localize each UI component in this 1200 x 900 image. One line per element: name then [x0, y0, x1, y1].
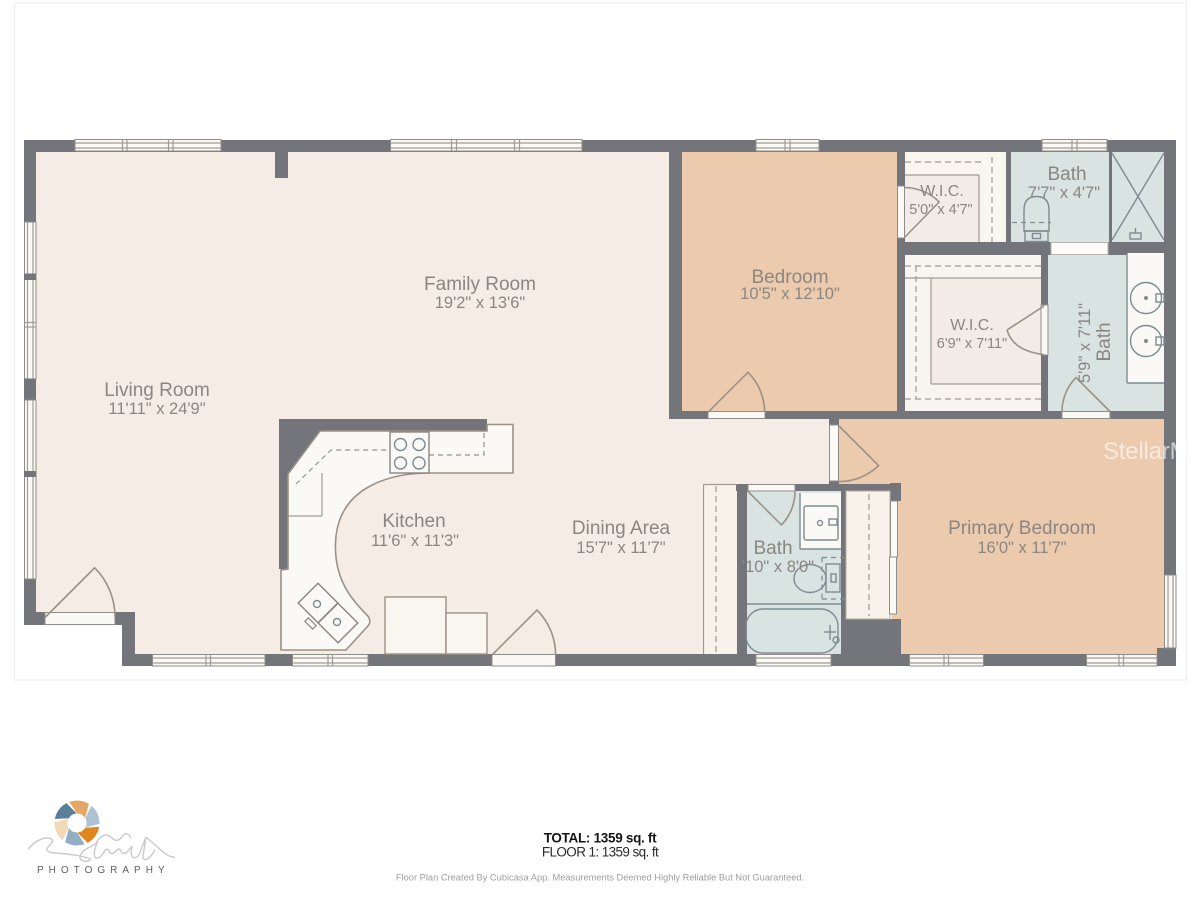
svg-text:Primary Bedroom: Primary Bedroom: [948, 518, 1096, 539]
svg-text:19'2" x 13'6": 19'2" x 13'6": [435, 294, 526, 312]
svg-text:5'9" x 7'11": 5'9" x 7'11": [1076, 303, 1094, 383]
svg-text:6'9" x 7'11": 6'9" x 7'11": [937, 336, 1007, 352]
svg-text:Living Room: Living Room: [104, 380, 210, 401]
svg-text:5'0" x 4'7": 5'0" x 4'7": [909, 202, 972, 218]
svg-text:'10" x 8'0": '10" x 8'0": [742, 558, 814, 576]
svg-text:TOTAL: 1359 sq. ft: TOTAL: 1359 sq. ft: [544, 831, 657, 846]
svg-text:W.I.C.: W.I.C.: [950, 317, 994, 334]
svg-text:Dining Area: Dining Area: [572, 518, 671, 539]
svg-text:FLOOR 1: 1359 sq. ft: FLOOR 1: 1359 sq. ft: [542, 845, 659, 860]
svg-text:15'7" x 11'7": 15'7" x 11'7": [576, 539, 665, 557]
svg-text:Family Room: Family Room: [424, 274, 536, 295]
svg-text:11'6" x 11'3": 11'6" x 11'3": [371, 532, 459, 550]
svg-text:PHOTOGRAPHY: PHOTOGRAPHY: [37, 865, 170, 876]
svg-text:16'0" x 11'7": 16'0" x 11'7": [977, 539, 1066, 557]
svg-text:Bath: Bath: [1047, 164, 1086, 185]
svg-text:Floor Plan Created By Cubicasa: Floor Plan Created By Cubicasa App. Meas…: [396, 873, 804, 883]
svg-text:7'7" x 4'7": 7'7" x 4'7": [1028, 184, 1100, 202]
svg-text:W.I.C.: W.I.C.: [920, 183, 964, 200]
svg-text:Bath: Bath: [753, 538, 792, 559]
svg-text:Kitchen: Kitchen: [382, 511, 445, 532]
svg-text:11'11" x 24'9": 11'11" x 24'9": [108, 400, 205, 418]
svg-text:10'5" x 12'10": 10'5" x 12'10": [740, 285, 840, 303]
svg-text:Bath: Bath: [1094, 322, 1115, 361]
svg-text:StellarMLS: StellarMLS: [1103, 438, 1200, 465]
